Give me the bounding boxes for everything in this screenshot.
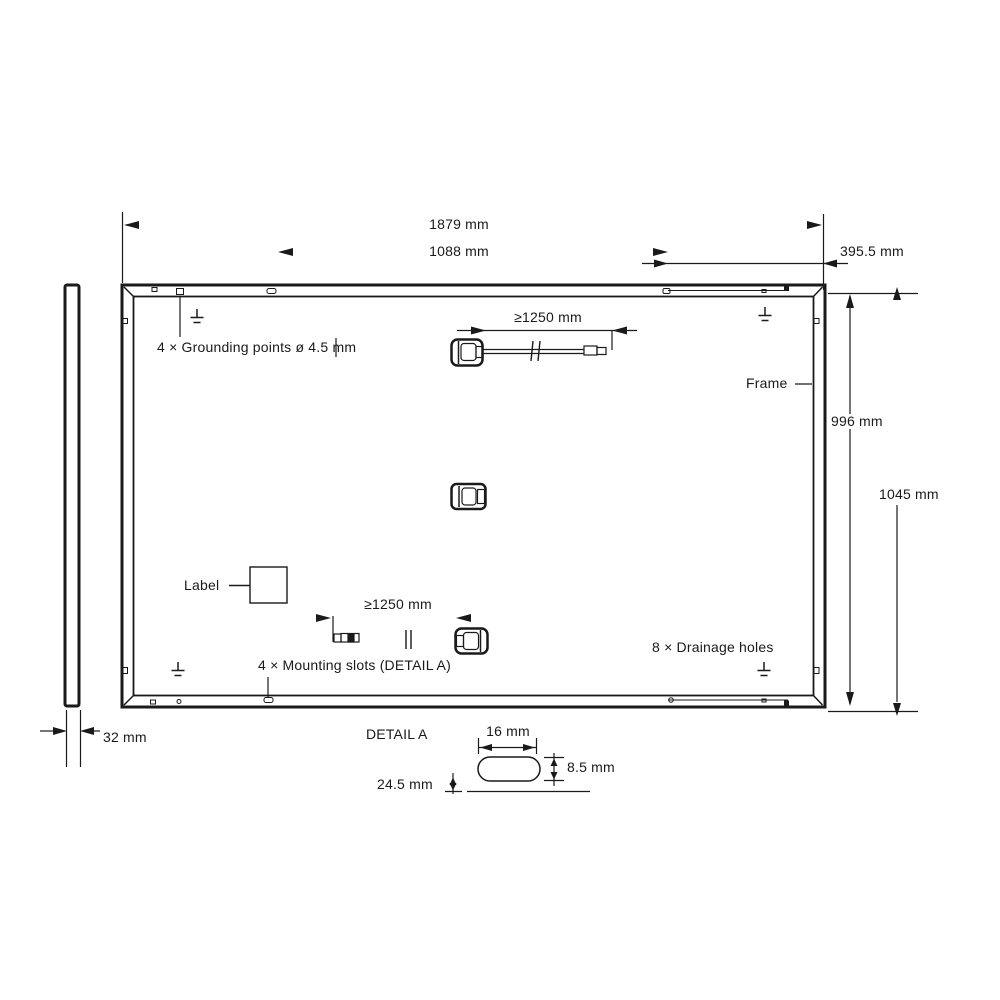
dim-slot-spacing-vertical: 996 mm: [829, 414, 885, 429]
ground-symbol-icon-bottom-right: [758, 662, 771, 676]
dimension-395-5mm-lines: [642, 260, 848, 268]
ground-symbol-icon-bottom-left: [172, 662, 185, 676]
dimension-24-5mm-lines: [445, 773, 590, 794]
annotation-frame: Frame: [746, 376, 787, 391]
ground-symbol-icon-top-right: [759, 307, 772, 321]
annotation-mounting-slots: 4 × Mounting slots (DETAIL A): [258, 658, 451, 673]
dim-panel-thickness: 32 mm: [103, 730, 147, 745]
panel-side-view: [65, 285, 79, 706]
dim-detail-slot-width: 16 mm: [486, 724, 530, 739]
dim-panel-height: 1045 mm: [879, 487, 939, 502]
annotation-drainage-holes: 8 × Drainage holes: [652, 640, 774, 655]
cable-top: [483, 341, 606, 361]
dim-detail-slot-offset: 24.5 mm: [377, 777, 433, 792]
connector-top: [452, 340, 484, 366]
panel-mechanical-drawing: 1879 mm 1088 mm 395.5 mm ≥1250 mm 4 × Gr…: [0, 0, 1000, 1000]
dimension-16mm-lines: [479, 738, 537, 754]
dim-panel-width: 1879 mm: [429, 217, 489, 232]
connector-bottom: [456, 629, 488, 654]
dimension-8-5mm-lines: [544, 753, 564, 786]
dim-cable-length-top: ≥1250 mm: [514, 310, 582, 325]
dimension-cable-bottom-lines: [316, 614, 471, 642]
dimension-996mm-lines: [828, 294, 918, 712]
detail-a-title: DETAIL A: [366, 727, 428, 742]
drawing-linework: [0, 0, 1000, 1000]
dim-slot-edge-offset: 395.5 mm: [840, 244, 904, 259]
annotation-label: Label: [184, 578, 219, 593]
dim-detail-slot-height: 8.5 mm: [567, 760, 615, 775]
dimension-32mm-lines: [40, 710, 100, 767]
label-outline: [229, 567, 287, 603]
dimension-cable-top-lines: [457, 327, 637, 351]
ground-symbol-icon-top-left: [191, 309, 204, 323]
detail-a-slot: [478, 757, 540, 781]
cable-bottom: [334, 630, 411, 649]
leader-lines: [180, 296, 812, 698]
dim-cable-length-bottom: ≥1250 mm: [364, 597, 432, 612]
dim-slot-spacing-horizontal: 1088 mm: [429, 244, 489, 259]
junction-box: [452, 484, 486, 509]
annotation-grounding-points: 4 × Grounding points ø 4.5 mm: [157, 340, 356, 355]
